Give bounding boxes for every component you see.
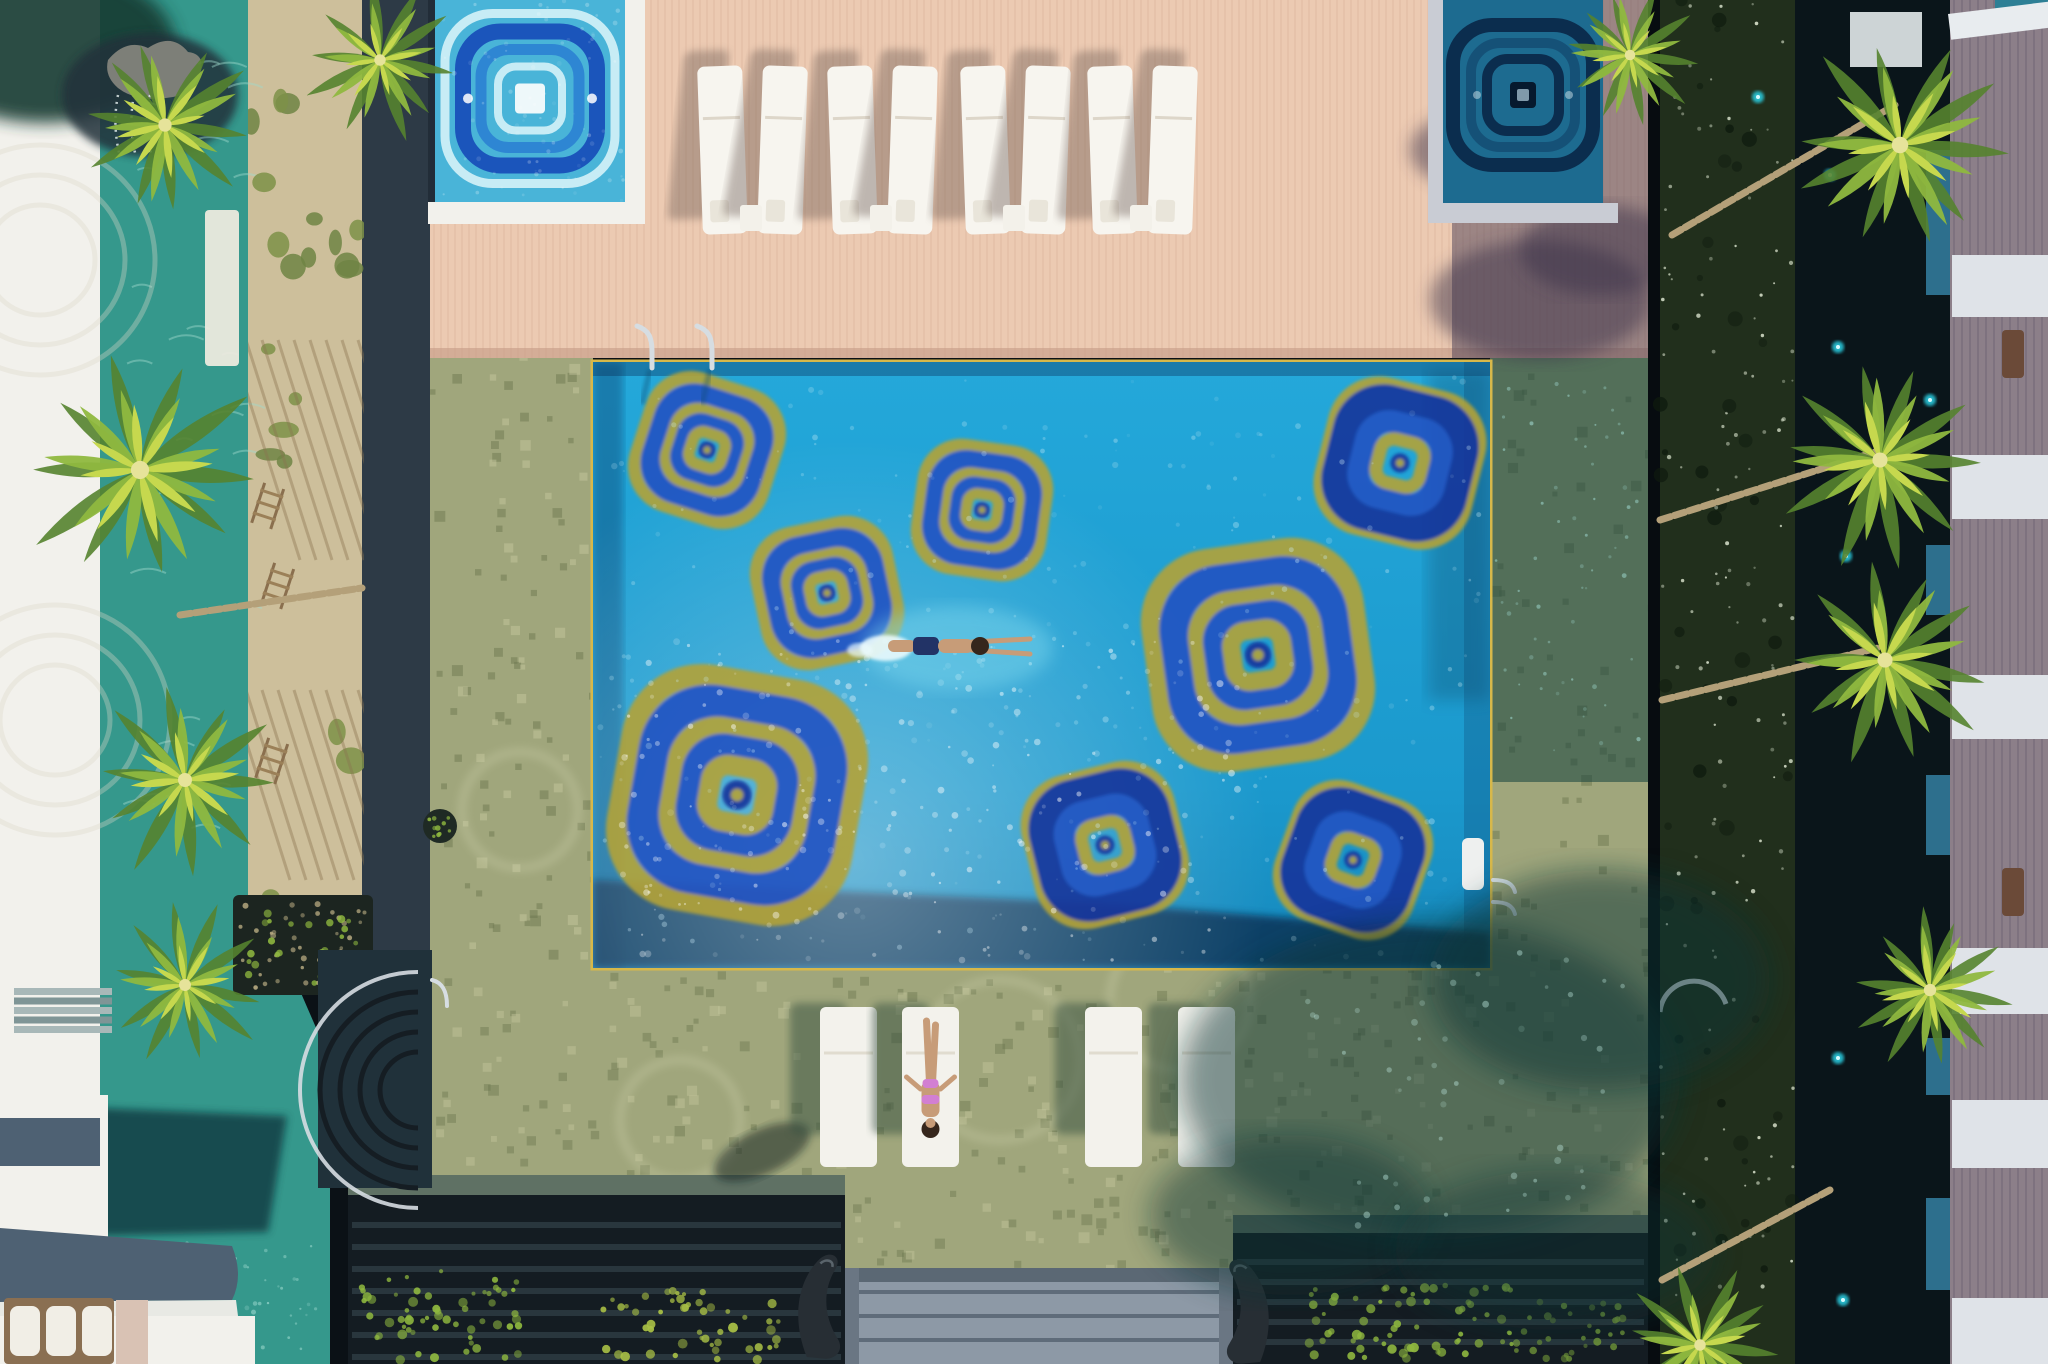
planter-plant [288, 921, 294, 927]
tile-square-dark [1094, 1198, 1104, 1208]
pergola-plants [774, 1344, 779, 1349]
pergola-plants [405, 1275, 409, 1279]
jacuzzi-frame [428, 202, 645, 224]
jacuzzi-ripple [487, 55, 490, 58]
hedge-flower [1781, 418, 1784, 421]
jacuzzi-ripple [532, 60, 535, 63]
tile-square-light [443, 1100, 450, 1107]
pergola-plants [1382, 1341, 1387, 1346]
hedge-flower [1689, 4, 1692, 7]
caustic [1253, 784, 1257, 788]
jacuzzi-ripple [515, 131, 520, 136]
caustic-bright [992, 785, 996, 789]
hedge-flower [1791, 380, 1793, 382]
channel-dapple [277, 1285, 279, 1287]
pergola-plants [1593, 1338, 1601, 1346]
shade-sparkle [1518, 590, 1520, 592]
pergola-plants [469, 1340, 474, 1345]
tile-square-dark [1159, 1149, 1168, 1158]
jacuzzi-ripple [552, 141, 556, 145]
caustic [746, 477, 748, 479]
pergola-plants [700, 1307, 708, 1315]
tile-square-dark [650, 1041, 657, 1048]
hedge-flower [1776, 161, 1779, 164]
caustic [1086, 642, 1091, 647]
palm-crown [158, 118, 171, 131]
shadow-sparkle [1450, 980, 1456, 986]
tile-square-dark [480, 1027, 489, 1036]
tile-square-light [1028, 1076, 1036, 1084]
tile-square-light [1026, 1231, 1036, 1241]
tile-square-dark [539, 1100, 547, 1108]
caustic [1002, 425, 1007, 430]
caustic-bright [1111, 861, 1118, 868]
caustic-bright [690, 805, 692, 807]
caustic [1136, 775, 1141, 780]
jacuzzi-ripple [574, 178, 576, 180]
jacuzzi-ripple [562, 187, 564, 189]
jacuzzi-ripple [552, 101, 556, 105]
caustic [1025, 557, 1029, 561]
caustic-bright [811, 797, 816, 802]
caustic-bright [881, 765, 888, 772]
tile-square-light [512, 1014, 521, 1023]
pergola-plants [1383, 1285, 1390, 1292]
tile-square-light [702, 1139, 712, 1149]
caustic [1424, 819, 1429, 824]
tile-square-dark [1577, 798, 1582, 803]
tile-square-dark [972, 1150, 979, 1157]
caustic [1474, 598, 1479, 603]
pergola-plants [507, 1323, 514, 1330]
caustic [1083, 959, 1085, 961]
caustic-bright [845, 912, 847, 914]
hedge-flower [1790, 350, 1794, 354]
caustic [679, 425, 683, 429]
planter-gravel [259, 973, 262, 976]
hedge-flower [1742, 854, 1745, 857]
caustic [1289, 662, 1294, 667]
pergola-plants [479, 1318, 485, 1324]
pergola-plants [397, 1330, 407, 1340]
caustic [962, 421, 967, 426]
caustic-bright [1083, 684, 1088, 689]
caustic [844, 868, 847, 871]
shade-sparkle [1630, 658, 1633, 661]
tile-square-light [563, 1104, 571, 1112]
pergola-plants [1373, 1336, 1379, 1342]
tile-square-dark [1491, 831, 1499, 839]
pergola-plants [1610, 1343, 1617, 1350]
planter-gravel [239, 925, 243, 929]
lounger-seam [1028, 117, 1065, 118]
pergola-plants [1387, 1333, 1392, 1338]
caustic [818, 390, 823, 395]
caustic [1181, 464, 1186, 469]
jacuzzi-ripple [535, 170, 537, 172]
pergola-plants [514, 1350, 522, 1358]
caustic-bright [803, 814, 808, 819]
caustic [1450, 474, 1454, 478]
pergola-plants [1414, 1324, 1419, 1329]
caustic-bright [730, 801, 734, 805]
caustic [1131, 380, 1134, 383]
pergola-plants [776, 1319, 781, 1324]
tile-square-dark [1562, 797, 1568, 803]
pergola-plants [439, 1269, 443, 1273]
caustic-bright [1097, 666, 1100, 669]
planter-plant [305, 921, 312, 928]
caustic-bright [718, 846, 722, 850]
tree-shadow [1430, 870, 1770, 1090]
pergola-plants [493, 1285, 499, 1291]
caustic [1323, 555, 1327, 559]
hedge-depth [1697, 275, 1703, 281]
walkway-top-shadow [845, 1268, 1233, 1282]
stone-edge-strip [362, 0, 430, 990]
tile-square-dark [608, 1070, 619, 1081]
pergola-plants [467, 1325, 475, 1333]
caustic [1233, 522, 1239, 528]
caustic [812, 435, 818, 441]
jacuzzi-ripple [620, 199, 623, 202]
tile-square-light [520, 665, 525, 670]
caustic-bright [1182, 813, 1188, 819]
caustic-bright [1039, 811, 1042, 814]
caustic [1369, 626, 1372, 629]
channel-dapple [293, 1277, 297, 1281]
planter-gravel [275, 979, 279, 983]
hedge-flower [1692, 1200, 1695, 1203]
tile-square-dark [497, 509, 505, 517]
caustic [1295, 423, 1301, 429]
caustic [756, 813, 760, 817]
pergola-plants [767, 1345, 772, 1350]
caustic [1476, 512, 1481, 517]
tile-square-dark [1019, 1166, 1026, 1173]
shadow-sparkle [1314, 1014, 1319, 1019]
tile-square-dark [489, 831, 494, 836]
caustic [652, 504, 656, 508]
caustic [1080, 561, 1086, 567]
pergola-plants [420, 1318, 425, 1323]
caustic-bright [619, 822, 626, 829]
caustic [1256, 432, 1260, 436]
hedge-depth [1742, 1158, 1748, 1164]
tile-square-dark [706, 989, 714, 997]
tile-square-dark [520, 1159, 528, 1167]
caustic [1458, 682, 1463, 687]
hedge-flower [1746, 582, 1750, 586]
pergola-plants [617, 1303, 625, 1311]
shade-sparkle [1529, 655, 1533, 659]
caustic [1289, 547, 1294, 552]
hedge-depth [1732, 161, 1742, 171]
hedge-flower [1756, 1181, 1760, 1185]
caustic-bright [854, 908, 860, 914]
tile-square-dark [547, 737, 553, 743]
hedge-flower [1784, 765, 1787, 768]
caustic [1074, 565, 1077, 568]
shade-sparkle [1592, 684, 1597, 689]
caustic-bright [704, 684, 706, 686]
hedge-depth [1702, 237, 1713, 248]
lounger-foot [895, 199, 915, 222]
caustic-bright [627, 715, 630, 718]
swimmer-trunks [913, 637, 939, 655]
caustic-bright [899, 719, 905, 725]
caustic [868, 572, 874, 578]
hedge-flower [1681, 112, 1684, 115]
caustic-bright [891, 811, 897, 817]
planter-plant [247, 950, 255, 958]
pergola-plants [1581, 1336, 1586, 1341]
tile-square-dark [501, 575, 507, 581]
pergola-plants [1545, 1336, 1551, 1342]
shade-sparkle [1540, 687, 1543, 690]
tile-square-dark [882, 1251, 888, 1257]
jacuzzi-ripple [588, 57, 591, 60]
pergola-plants [472, 1292, 476, 1296]
moss-clump [252, 173, 276, 193]
caustic [1074, 720, 1078, 724]
pergola-plants [394, 1293, 398, 1297]
roof-hatch [2002, 330, 2024, 378]
caustic-bright [949, 829, 952, 832]
caustic-bright [1106, 875, 1108, 877]
caustic-bright [754, 884, 758, 888]
hedge-flower [1664, 208, 1667, 211]
shadow-sparkle [1418, 1037, 1421, 1040]
caustic-bright [866, 668, 870, 672]
caustic [1297, 496, 1301, 500]
shade-sparkle [1548, 641, 1551, 644]
roof-slab [1850, 12, 1922, 67]
planter-gravel [284, 916, 289, 921]
caustic [911, 737, 917, 743]
caustic [1374, 880, 1376, 882]
pergola-plants [766, 1318, 772, 1324]
pergola-plants [707, 1303, 715, 1311]
hedge-depth [1654, 468, 1668, 482]
pergola-plants [468, 1335, 473, 1340]
caustic-bright [647, 738, 650, 741]
hedge-depth [1728, 311, 1743, 326]
caustic-bright [901, 779, 906, 784]
caustic-bright [648, 680, 654, 686]
shadow-sparkle [1393, 1182, 1398, 1187]
caustic [1158, 618, 1160, 620]
caustic [1282, 586, 1288, 592]
caustic [1040, 449, 1045, 454]
caustic [600, 756, 602, 758]
shade-sparkle [1553, 749, 1555, 751]
caustic [1291, 936, 1297, 942]
caustic [1430, 706, 1435, 711]
hedge-flower [1725, 541, 1729, 545]
caustic-bright [849, 695, 856, 702]
building-shadow-on-water [100, 1108, 287, 1236]
caustic [1317, 564, 1319, 566]
jacuzzi-ripple [538, 169, 542, 173]
bikini-bottom [923, 1079, 939, 1088]
hedge-flower [1790, 1260, 1793, 1263]
jacuzzi-ripple [529, 96, 532, 99]
jacuzzi-ripple [518, 105, 523, 110]
shade-sparkle [1583, 707, 1587, 711]
caustic [932, 559, 936, 563]
pergola-plants [753, 1355, 762, 1364]
tile-square-light [490, 374, 496, 380]
potted-plant [423, 809, 457, 843]
pergola-plants [699, 1336, 703, 1340]
caustic [710, 882, 716, 888]
caustic-bright [795, 673, 798, 676]
tile-square-light [533, 730, 541, 738]
caustic [1023, 745, 1026, 748]
jacuzzi-ripple [546, 6, 549, 9]
pergola-plants [1561, 1355, 1569, 1363]
jacuzzi-ripple [577, 164, 581, 168]
caustic [841, 693, 847, 699]
caustic-bright [1178, 764, 1183, 769]
tile-square-light [610, 1026, 617, 1033]
pergola-plants [766, 1325, 776, 1335]
pergola-plants [676, 1295, 685, 1304]
tile-square-dark [576, 652, 583, 659]
hedge-depth [1695, 1198, 1705, 1208]
shade-sparkle [1604, 704, 1606, 706]
tile-square-dark [527, 1136, 536, 1145]
tile-square-dark [437, 671, 443, 677]
caustic [1405, 699, 1407, 701]
tile-square-light [570, 559, 576, 565]
caustic [927, 739, 930, 742]
caustic [729, 831, 734, 836]
palm-crown [1872, 452, 1887, 467]
hedge-flower [1762, 618, 1766, 622]
shade-sparkle [1574, 438, 1577, 441]
palm-crown [1892, 137, 1909, 154]
caustic [1170, 715, 1175, 720]
caustic-bright [657, 857, 662, 862]
planter-gravel [301, 955, 307, 961]
pergola-plants [482, 1290, 486, 1294]
caustic-bright [1152, 937, 1157, 942]
shade-sparkle [1503, 448, 1506, 451]
villa-plunge-pool [1926, 545, 1950, 615]
caustic [1323, 868, 1327, 872]
lounger-seam [895, 117, 932, 118]
hedge-flower [1695, 855, 1698, 858]
pergola-plants [646, 1350, 655, 1359]
tile-square-dark [1068, 1178, 1073, 1183]
swimmer-splash [847, 643, 873, 657]
caustic-bright [749, 826, 755, 832]
tile-square-dark [908, 992, 918, 1002]
caustic [911, 537, 914, 540]
jacuzzi-ripple [464, 26, 467, 29]
pool-mosaic-medallion [1310, 373, 1489, 552]
jacuzzi-frame [1428, 0, 1443, 222]
pergola-plants [1595, 1329, 1600, 1334]
caustic-bright [1160, 891, 1166, 897]
tile-square-dark [751, 1124, 757, 1130]
pergola-plants [1359, 1317, 1368, 1326]
pergola-plants [1353, 1296, 1359, 1302]
caustic-bright [659, 894, 662, 897]
planter-plant [341, 926, 348, 933]
pergola-plants [600, 1307, 606, 1313]
caustic-bright [988, 954, 991, 957]
hedge-flower [1748, 196, 1751, 199]
pergola-plants [406, 1327, 412, 1333]
tile-square-light [453, 1027, 462, 1036]
shade-sparkle [1556, 692, 1560, 696]
hedge-flower [1771, 664, 1774, 667]
channel-dapple [251, 1310, 256, 1315]
pergola-plants [502, 1354, 509, 1361]
shadow-sparkle [1441, 1089, 1447, 1095]
tile-square-light [1216, 982, 1221, 987]
tile-square-dark [558, 519, 564, 525]
channel-dapple [264, 1249, 268, 1253]
shade-sparkle [1593, 498, 1595, 500]
planter-gravel [335, 932, 338, 935]
swimmer-legs [888, 640, 916, 652]
caustic [774, 606, 778, 610]
caustic-bright [646, 842, 650, 846]
pergola-plants [1387, 1344, 1396, 1353]
jacuzzi-ripple [581, 157, 585, 161]
shade-sparkle [1614, 547, 1616, 549]
caustic [955, 882, 958, 885]
caustic-bright [1156, 759, 1161, 764]
caustic-bright [1055, 722, 1060, 727]
jacuzzi-frame [1428, 203, 1618, 223]
tile-square-light [503, 619, 509, 625]
jacuzzi-ripple [515, 123, 519, 127]
hedge-flower [1709, 257, 1713, 261]
channel-dapple [296, 1278, 299, 1281]
hedge-flower [1714, 724, 1716, 726]
pergola-plants [1305, 1338, 1314, 1347]
caustic-bright [731, 724, 736, 729]
hedge-flower [1662, 353, 1665, 356]
channel-dapple [258, 1302, 262, 1306]
caustic-bright [983, 948, 987, 952]
caustic [1157, 861, 1159, 863]
caustic-bright [1027, 754, 1030, 757]
villa-terrace [1952, 1298, 2048, 1364]
lounger-seam [833, 117, 870, 118]
jacuzzi-ripple [552, 117, 556, 121]
tile-square-dark [563, 1140, 573, 1150]
hedge-depth [1739, 434, 1753, 448]
caustic [1047, 622, 1051, 626]
caustic [1354, 698, 1360, 704]
hedge-depth [1733, 1136, 1748, 1151]
garden-light-core [1836, 345, 1840, 349]
jacuzzi-ripple [620, 175, 622, 177]
caustic [1003, 575, 1007, 579]
pergola-plants [387, 1278, 392, 1283]
shadow-sparkle [1424, 1196, 1430, 1202]
walkway-side [845, 1268, 859, 1364]
tile-square-light [517, 694, 526, 703]
hedge-flower [1750, 129, 1752, 131]
caustic [906, 545, 909, 548]
